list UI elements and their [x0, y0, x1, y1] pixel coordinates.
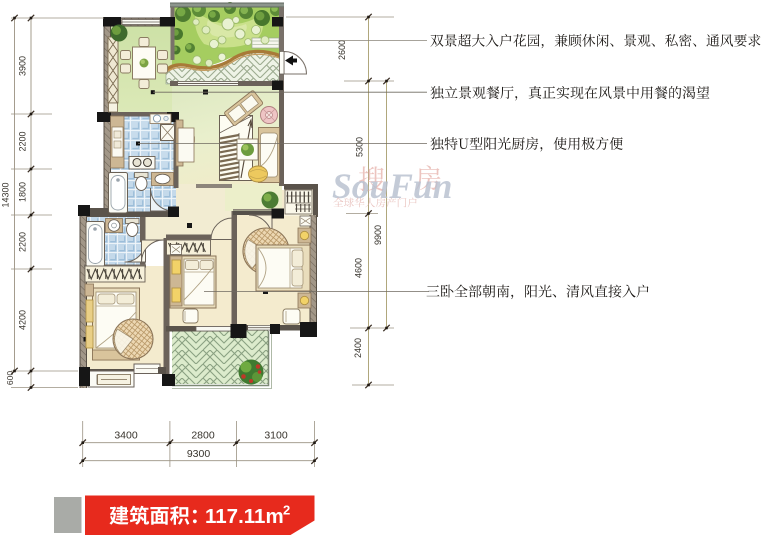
svg-text:9300: 9300 — [187, 448, 211, 460]
svg-text:14300: 14300 — [1, 182, 11, 207]
svg-text:1800: 1800 — [18, 182, 28, 202]
svg-text:117.11m: 117.11m — [205, 505, 284, 528]
svg-text:2400: 2400 — [353, 338, 363, 358]
svg-text:3100: 3100 — [264, 430, 288, 442]
svg-text:2800: 2800 — [191, 430, 215, 442]
svg-text:5300: 5300 — [355, 137, 365, 157]
svg-text:4600: 4600 — [354, 258, 364, 278]
svg-text:3400: 3400 — [114, 430, 138, 442]
svg-text:9900: 9900 — [373, 225, 383, 245]
svg-text:2200: 2200 — [18, 131, 28, 151]
svg-text:2: 2 — [283, 503, 290, 518]
svg-text:600: 600 — [5, 371, 15, 385]
svg-text:3900: 3900 — [18, 56, 28, 76]
svg-text:2200: 2200 — [18, 232, 28, 252]
svg-text:4200: 4200 — [18, 310, 28, 330]
svg-text:2600: 2600 — [337, 40, 347, 60]
